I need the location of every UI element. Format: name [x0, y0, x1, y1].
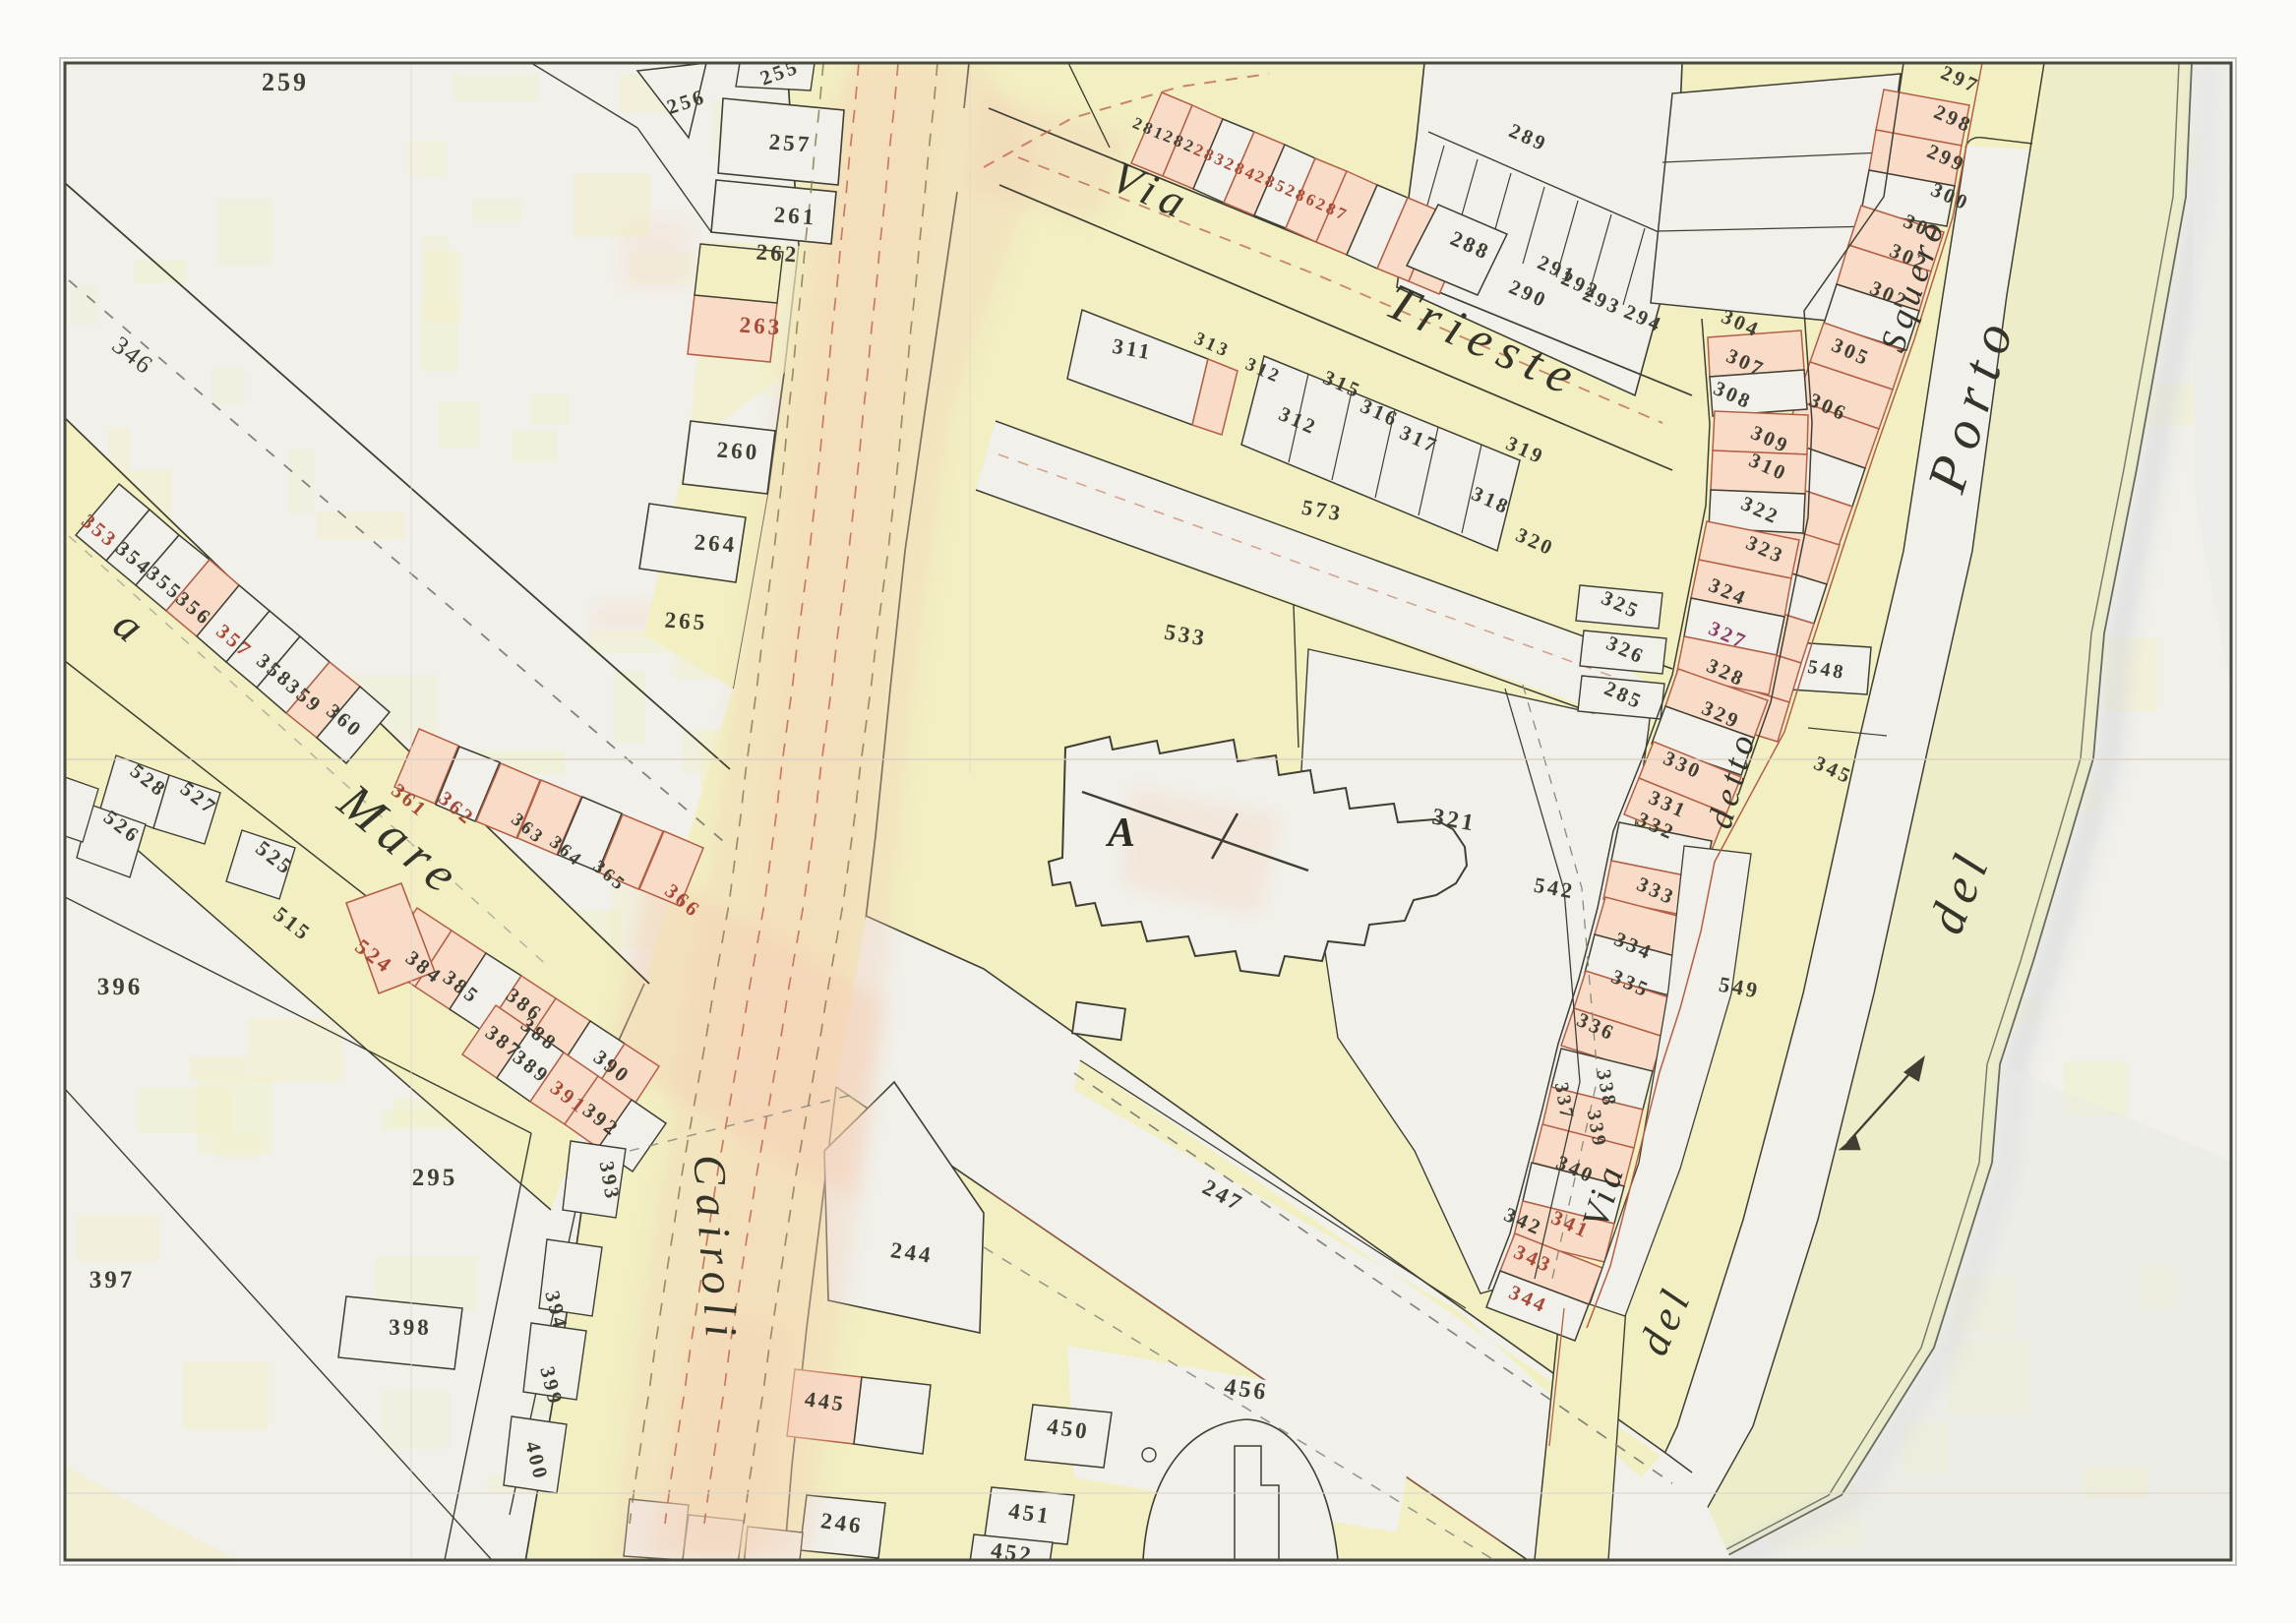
- svg-text:397: 397: [90, 1267, 136, 1293]
- svg-text:396: 396: [97, 974, 144, 1000]
- svg-text:257: 257: [768, 130, 813, 157]
- svg-text:264: 264: [694, 530, 738, 558]
- svg-text:295: 295: [412, 1165, 458, 1191]
- svg-text:263: 263: [739, 313, 783, 340]
- svg-text:A: A: [1105, 811, 1137, 856]
- svg-text:260: 260: [716, 438, 760, 465]
- svg-text:398: 398: [389, 1315, 432, 1340]
- svg-text:259: 259: [262, 68, 309, 96]
- svg-text:262: 262: [755, 240, 800, 268]
- svg-text:265: 265: [664, 608, 708, 635]
- svg-text:261: 261: [773, 203, 817, 230]
